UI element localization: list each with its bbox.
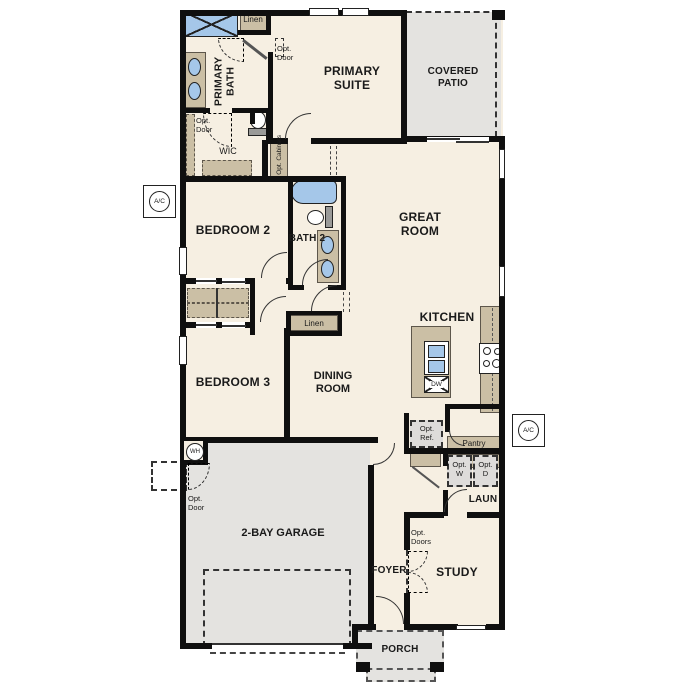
- wall: [286, 278, 293, 284]
- linen-hall-label: Linen: [294, 319, 334, 329]
- wic-shelf: [202, 160, 252, 176]
- sink: [188, 82, 201, 100]
- hall-cabinet: [410, 452, 441, 467]
- garage-door-dash: [210, 652, 345, 654]
- porch-pier: [430, 662, 444, 672]
- wall: [311, 138, 405, 144]
- cased-opening-dash: [330, 146, 331, 175]
- sink: [188, 58, 201, 76]
- wall: [486, 624, 505, 630]
- wall: [245, 322, 255, 328]
- window: [309, 8, 339, 16]
- window: [179, 247, 187, 275]
- closet-slider: [222, 281, 246, 283]
- wall: [180, 322, 196, 328]
- wall: [404, 448, 445, 454]
- closet-shelf: [187, 288, 249, 303]
- opt-dryer-label: Opt. D: [475, 460, 496, 478]
- garage-door-panel: [212, 643, 343, 645]
- ac-unit-left: A/C: [149, 191, 170, 212]
- wic-shelf-side: [186, 114, 195, 176]
- wall: [288, 311, 340, 315]
- opt-washer-label: Opt. W: [449, 460, 470, 478]
- window: [456, 625, 486, 630]
- wall: [404, 518, 410, 550]
- wall: [338, 311, 342, 335]
- closet-shelf: [187, 303, 249, 318]
- sink-basin: [428, 360, 445, 373]
- dishwasher: DW: [424, 376, 449, 393]
- sink-basin: [428, 345, 445, 358]
- opt-door-wic-label: Opt. Door: [196, 116, 222, 134]
- window: [499, 149, 505, 179]
- foyer-label: FOYER: [361, 565, 417, 577]
- opt-ref-label: Opt. Ref.: [414, 424, 440, 442]
- bathtub: [291, 180, 337, 204]
- wall: [467, 512, 505, 518]
- water-heater: WH: [186, 443, 204, 461]
- patio-roof-dash-right: [495, 13, 497, 137]
- toilet-tank: [248, 128, 268, 136]
- wall: [445, 404, 450, 432]
- closet-divider: [216, 288, 218, 318]
- wall: [368, 465, 374, 630]
- wall: [404, 413, 409, 450]
- wall: [404, 512, 444, 518]
- garage-label: 2-BAY GARAGE: [223, 527, 343, 540]
- wh-label: WH: [190, 449, 200, 455]
- opt-cabinets-label: Opt. Cabinets: [276, 135, 284, 175]
- burner: [483, 360, 490, 367]
- opt-door-bath-label: Opt. Door: [277, 44, 303, 62]
- wall: [266, 108, 271, 142]
- wall: [443, 448, 505, 454]
- wall: [180, 643, 212, 649]
- wall: [492, 10, 505, 20]
- pantry-label: Pantry: [452, 439, 496, 449]
- slider-panel: [456, 141, 489, 143]
- toilet-tank: [325, 206, 333, 228]
- wall: [341, 182, 346, 290]
- porch-step: [366, 668, 436, 682]
- wall: [262, 140, 268, 180]
- great-room-label: GREAT ROOM: [380, 210, 460, 238]
- wall: [443, 454, 448, 466]
- porch-label: PORCH: [370, 644, 430, 656]
- kitchen-label: KITCHEN: [407, 310, 487, 324]
- wall: [180, 437, 378, 443]
- study-label: STUDY: [427, 565, 487, 579]
- ac-label: A/C: [523, 427, 534, 434]
- garage-parking-outline: [203, 569, 351, 647]
- wall: [404, 624, 458, 630]
- opt-doors-study-label: Opt. Doors: [411, 528, 441, 546]
- dining-room-label: DINING ROOM: [298, 370, 368, 396]
- cased-opening-dash: [343, 292, 344, 312]
- patio-roof-dash-top: [406, 11, 499, 13]
- closet-slider: [222, 325, 246, 327]
- wall: [404, 593, 410, 628]
- window: [179, 336, 187, 365]
- opt-door-garage-label: Opt. Door: [188, 494, 214, 512]
- bedroom2-label: BEDROOM 2: [173, 223, 293, 237]
- primary-suite-label: PRIMARY SUITE: [312, 64, 392, 92]
- wall: [352, 630, 358, 644]
- covered-patio-label: COVERED PATIO: [418, 66, 488, 90]
- bedroom3-label: BEDROOM 3: [173, 375, 293, 389]
- toilet-bowl: [307, 210, 324, 225]
- wall: [401, 10, 407, 144]
- porch-pier: [356, 662, 370, 672]
- cased-opening-dash: [336, 146, 337, 175]
- primary-bath-label: PRIMARY BATH: [213, 47, 238, 115]
- closet-slider: [196, 324, 217, 326]
- burner: [483, 347, 491, 355]
- slider-panel: [427, 138, 460, 140]
- window: [499, 266, 505, 297]
- bath2-label: BATH 2: [287, 233, 327, 245]
- wall: [180, 10, 407, 16]
- cased-opening-dash: [349, 292, 350, 312]
- wall: [250, 110, 255, 124]
- wall: [180, 10, 186, 649]
- dishwasher-label: DW: [430, 381, 443, 389]
- window: [342, 8, 369, 16]
- laundry-label: LAUN: [461, 494, 505, 506]
- wall: [288, 285, 304, 290]
- wall: [180, 278, 196, 284]
- floor-plan: DW: [0, 0, 687, 687]
- ac-unit-right: A/C: [518, 420, 539, 441]
- ac-label: A/C: [154, 198, 165, 205]
- linen-top-label: Linen: [238, 15, 268, 25]
- wic-label: WIC: [210, 146, 246, 157]
- wall: [286, 331, 342, 336]
- closet-slider: [196, 280, 217, 282]
- wall: [499, 136, 505, 630]
- wall: [445, 404, 505, 409]
